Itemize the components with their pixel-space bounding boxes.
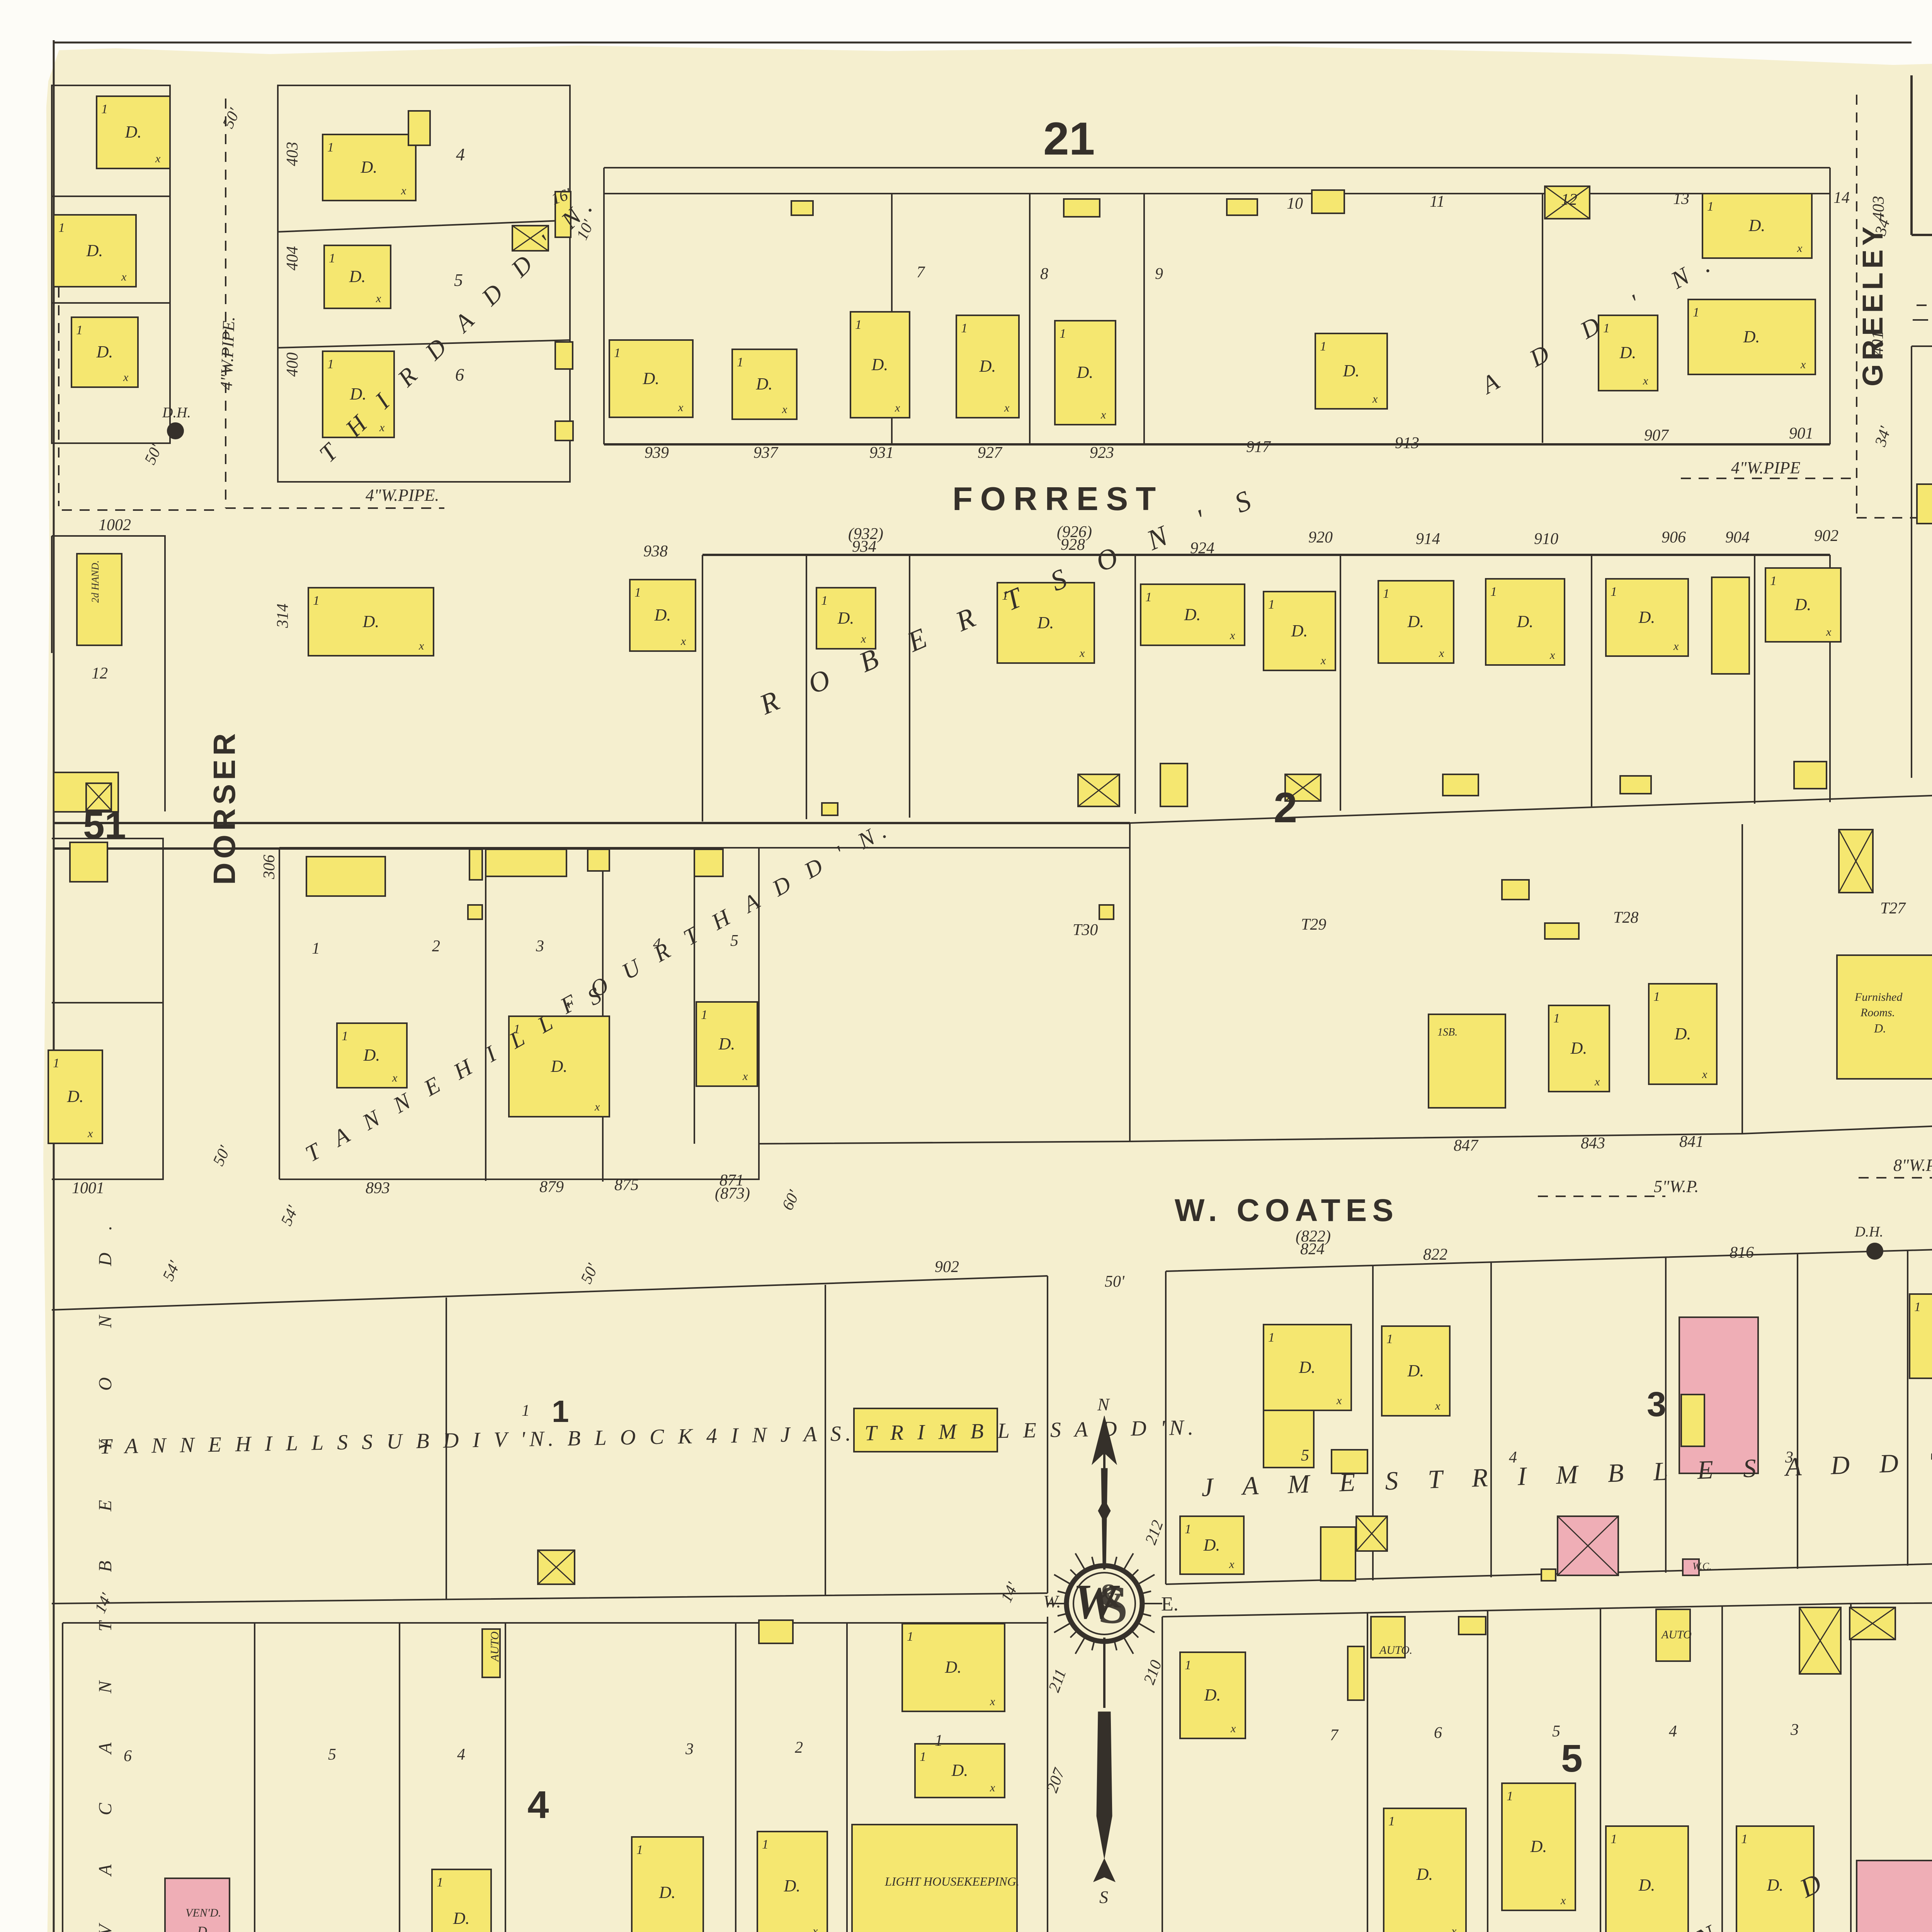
svg-text:x: x (1643, 374, 1648, 387)
svg-text:x: x (594, 1100, 600, 1113)
svg-text:D.: D. (1748, 216, 1765, 235)
svg-text:&: & (1096, 1577, 1123, 1615)
svg-text:5: 5 (730, 932, 738, 950)
svg-text:x: x (1673, 1928, 1679, 1932)
svg-text:x: x (1826, 626, 1832, 638)
svg-text:x: x (418, 639, 424, 652)
svg-text:1: 1 (76, 323, 83, 337)
svg-text:920: 920 (1308, 529, 1333, 546)
svg-text:D.: D. (1203, 1536, 1220, 1554)
svg-text:1: 1 (1611, 585, 1617, 599)
svg-text:D.: D. (361, 158, 378, 177)
svg-text:824: 824 (1300, 1240, 1325, 1258)
svg-text:1: 1 (636, 1843, 643, 1857)
svg-text:13: 13 (1673, 190, 1689, 208)
svg-text:D.: D. (1767, 1876, 1784, 1895)
svg-text:x: x (742, 1070, 748, 1083)
svg-text:x: x (1230, 1722, 1236, 1735)
svg-text:1: 1 (1741, 1832, 1748, 1846)
svg-text:x: x (1372, 393, 1378, 405)
svg-text:314: 314 (274, 604, 292, 628)
svg-text:x: x (1594, 1075, 1600, 1088)
svg-text:875: 875 (614, 1176, 639, 1194)
svg-text:T29: T29 (1301, 916, 1326, 934)
svg-text:1: 1 (961, 321, 968, 335)
svg-text:1: 1 (1002, 588, 1009, 603)
svg-text:x: x (1336, 1394, 1342, 1407)
svg-text:x: x (782, 403, 787, 416)
svg-text:3: 3 (685, 1740, 694, 1758)
svg-text:D.: D. (350, 384, 367, 403)
svg-text:404: 404 (284, 246, 301, 270)
svg-text:D.: D. (1638, 608, 1655, 627)
svg-text:x: x (401, 184, 406, 197)
svg-text:3: 3 (1790, 1721, 1799, 1739)
svg-text:D.: D. (979, 357, 996, 376)
svg-text:1: 1 (1320, 339, 1327, 354)
svg-text:14: 14 (1833, 189, 1850, 207)
svg-text:D.: D. (1407, 612, 1424, 631)
svg-text:T30: T30 (1073, 921, 1098, 939)
svg-text:841: 841 (1679, 1133, 1704, 1151)
svg-text:2: 2 (1274, 784, 1297, 832)
svg-text:D.: D. (125, 122, 142, 141)
svg-text:1: 1 (53, 1056, 60, 1070)
svg-text:1: 1 (1507, 1789, 1513, 1803)
svg-text:5: 5 (1552, 1723, 1560, 1740)
svg-text:12: 12 (1561, 191, 1577, 209)
svg-text:928: 928 (1061, 536, 1085, 554)
svg-text:1: 1 (514, 1022, 520, 1036)
svg-text:843: 843 (1581, 1134, 1605, 1152)
svg-text:6: 6 (1434, 1724, 1442, 1742)
svg-text:1001: 1001 (72, 1179, 104, 1197)
svg-text:x: x (895, 401, 900, 414)
svg-text:1: 1 (614, 346, 621, 360)
svg-text:1: 1 (437, 1875, 443, 1889)
svg-text:1: 1 (1386, 1332, 1393, 1346)
svg-text:1: 1 (737, 355, 743, 369)
svg-text:4"W.PIPE.: 4"W.PIPE. (366, 486, 439, 505)
svg-text:1: 1 (1914, 1300, 1921, 1314)
svg-text:937: 937 (753, 444, 779, 462)
svg-text:1: 1 (1388, 1814, 1395, 1828)
svg-text:x: x (1079, 647, 1085, 660)
svg-text:D.: D. (96, 342, 113, 361)
svg-text:7: 7 (1330, 1726, 1339, 1744)
svg-text:927: 927 (978, 444, 1003, 462)
svg-text:D.: D. (654, 605, 671, 624)
svg-text:306: 306 (260, 855, 278, 879)
svg-text:901: 901 (1789, 425, 1813, 442)
svg-text:x: x (155, 152, 161, 165)
svg-text:1: 1 (329, 251, 335, 265)
svg-text:x: x (123, 371, 129, 384)
svg-text:1: 1 (1707, 199, 1714, 214)
svg-text:N: N (1097, 1395, 1110, 1414)
svg-text:x: x (1439, 647, 1444, 660)
svg-text:D.: D. (659, 1883, 676, 1902)
svg-text:1: 1 (101, 102, 108, 116)
svg-text:934: 934 (852, 538, 876, 556)
svg-text:21: 21 (1043, 113, 1095, 165)
svg-text:D.: D. (1037, 613, 1054, 632)
svg-text:x: x (87, 1127, 93, 1140)
svg-text:D.: D. (1184, 605, 1201, 624)
svg-text:10: 10 (1287, 195, 1303, 213)
svg-text:FORREST: FORREST (952, 481, 1163, 517)
svg-text:x: x (1799, 1928, 1804, 1932)
svg-text:7: 7 (917, 264, 925, 281)
svg-text:E.: E. (1161, 1593, 1179, 1615)
svg-text:x: x (1560, 1894, 1566, 1907)
svg-text:x: x (680, 635, 686, 648)
svg-text:D.: D. (1077, 363, 1094, 382)
svg-text:LIGHT HOUSEKEEPING.: LIGHT HOUSEKEEPING. (884, 1874, 1019, 1888)
svg-text:DORSER: DORSER (207, 730, 241, 885)
svg-text:3: 3 (1785, 1449, 1793, 1466)
svg-text:x: x (1435, 1400, 1440, 1412)
svg-text:D.: D. (1619, 343, 1636, 362)
svg-text:AUTO: AUTO (488, 1631, 501, 1662)
svg-text:D.: D. (1416, 1865, 1433, 1884)
svg-text:D.: D. (1794, 595, 1811, 614)
svg-text:51: 51 (83, 804, 126, 847)
svg-text:x: x (678, 401, 684, 414)
svg-text:1: 1 (1145, 590, 1152, 604)
svg-text:x: x (376, 292, 381, 305)
svg-text:x: x (1100, 408, 1106, 421)
svg-text:1: 1 (855, 318, 862, 332)
svg-text:D.: D. (67, 1087, 84, 1106)
svg-text:D.: D. (837, 609, 854, 628)
svg-text:D.: D. (1743, 327, 1760, 346)
svg-text:D.: D. (945, 1658, 962, 1677)
svg-text:1SB.: 1SB. (1437, 1026, 1458, 1038)
svg-text:W. COATES: W. COATES (1175, 1193, 1399, 1228)
svg-text:8: 8 (1040, 265, 1048, 283)
svg-text:1: 1 (821, 594, 828, 608)
svg-text:5"W.P.: 5"W.P. (1654, 1177, 1699, 1196)
svg-text:T28: T28 (1613, 909, 1638, 927)
svg-text:822: 822 (1423, 1246, 1447, 1264)
svg-text:D.: D. (1517, 612, 1534, 631)
svg-text:931: 931 (869, 444, 894, 462)
svg-text:914: 914 (1416, 530, 1440, 548)
svg-text:1: 1 (313, 594, 320, 608)
svg-text:D.: D. (643, 369, 660, 388)
svg-text:1: 1 (920, 1750, 926, 1764)
svg-text:D.H.: D.H. (1854, 1224, 1883, 1240)
svg-text:4"W.PIPE.: 4"W.PIPE. (217, 316, 238, 390)
svg-text:847: 847 (1454, 1137, 1479, 1155)
svg-text:AUTO: AUTO (1661, 1628, 1692, 1641)
svg-text:917: 917 (1246, 438, 1271, 456)
svg-text:5: 5 (1561, 1737, 1583, 1780)
svg-text:x: x (1230, 629, 1235, 642)
svg-text:1: 1 (1693, 305, 1699, 320)
svg-text:12: 12 (92, 665, 108, 682)
svg-text:816: 816 (1730, 1244, 1754, 1262)
svg-text:5: 5 (328, 1746, 336, 1764)
svg-text:x: x (1673, 640, 1679, 653)
svg-text:4: 4 (1669, 1723, 1677, 1740)
svg-text:1: 1 (327, 357, 334, 371)
svg-text:4: 4 (653, 935, 661, 952)
svg-text:1: 1 (1611, 1832, 1617, 1846)
svg-text:4"W.PIPE: 4"W.PIPE (1731, 458, 1800, 477)
svg-text:4: 4 (1509, 1449, 1517, 1466)
svg-text:VEN'D.: VEN'D. (185, 1906, 221, 1919)
svg-text:910: 910 (1534, 530, 1558, 548)
svg-text:x: x (1797, 242, 1803, 255)
svg-text:1: 1 (1770, 574, 1777, 588)
svg-text:1: 1 (552, 1394, 569, 1429)
svg-text:D.: D. (197, 1923, 211, 1932)
svg-text:2d HAND.: 2d HAND. (90, 560, 101, 603)
svg-text:1: 1 (1185, 1522, 1191, 1536)
svg-text:Rooms.: Rooms. (1860, 1006, 1895, 1019)
svg-text:1: 1 (907, 1629, 913, 1644)
svg-text:1: 1 (634, 585, 641, 600)
svg-text:5: 5 (1301, 1447, 1309, 1464)
svg-text:1: 1 (342, 1029, 348, 1043)
svg-text:907: 907 (1644, 427, 1669, 444)
svg-text:1: 1 (1060, 327, 1066, 341)
svg-text:Furnished: Furnished (1854, 991, 1903, 1003)
svg-text:D.: D. (1874, 1021, 1886, 1035)
svg-text:1: 1 (312, 940, 320, 957)
svg-text:403: 403 (284, 142, 301, 166)
svg-text:3: 3 (536, 937, 544, 955)
svg-text:x: x (990, 1695, 995, 1708)
svg-text:x: x (121, 270, 127, 283)
svg-text:1: 1 (1383, 587, 1389, 601)
svg-text:4: 4 (457, 1746, 465, 1764)
svg-text:D.: D. (1343, 361, 1360, 380)
svg-text:1: 1 (935, 1732, 943, 1750)
svg-text:x: x (1702, 1068, 1708, 1081)
svg-text:5: 5 (454, 270, 463, 290)
svg-text:913: 913 (1395, 434, 1419, 452)
svg-text:x: x (1800, 358, 1806, 371)
svg-text:902: 902 (1814, 527, 1838, 545)
svg-text:938: 938 (643, 543, 668, 560)
svg-text:x: x (861, 633, 866, 645)
svg-text:D.: D. (1204, 1685, 1221, 1704)
svg-text:1: 1 (1490, 585, 1497, 599)
svg-text:1: 1 (1268, 597, 1275, 612)
svg-text:6: 6 (455, 365, 464, 384)
svg-text:1: 1 (762, 1837, 769, 1852)
svg-text:T27: T27 (1880, 900, 1906, 917)
svg-text:4: 4 (527, 1783, 549, 1827)
svg-text:x: x (379, 421, 385, 434)
svg-text:V A C A N T B E Y O N D.: V A C A N T B E Y O N D. (95, 1203, 116, 1932)
svg-text:x: x (392, 1071, 398, 1084)
svg-text:D.: D. (362, 612, 379, 631)
svg-text:D.: D. (86, 241, 103, 260)
svg-text:2: 2 (795, 1739, 803, 1757)
svg-text:D.: D. (951, 1761, 968, 1780)
svg-text:x: x (1549, 649, 1555, 662)
svg-text:50': 50' (1105, 1273, 1125, 1291)
svg-text:D.: D. (1407, 1361, 1424, 1380)
svg-text:2: 2 (432, 937, 440, 955)
svg-text:AUTO.: AUTO. (1379, 1644, 1412, 1656)
svg-text:11: 11 (1430, 193, 1445, 211)
svg-text:D.: D. (871, 355, 888, 374)
svg-text:1: 1 (1268, 1330, 1275, 1345)
svg-text:939: 939 (645, 444, 669, 462)
svg-text:x: x (990, 1781, 995, 1794)
svg-text:3: 3 (1647, 1385, 1666, 1424)
svg-text:400: 400 (284, 352, 301, 377)
svg-text:902: 902 (935, 1258, 959, 1276)
svg-text:GREELEY: GREELEY (1857, 223, 1889, 386)
svg-text:D.: D. (349, 267, 366, 286)
svg-text:1: 1 (1653, 990, 1660, 1004)
svg-text:893: 893 (366, 1179, 390, 1197)
svg-text:(873): (873) (715, 1185, 750, 1202)
svg-text:879: 879 (539, 1178, 564, 1196)
svg-text:8"W.PIPE.: 8"W.PIPE. (1893, 1156, 1932, 1175)
svg-text:D.: D. (1291, 621, 1308, 640)
svg-text:1002: 1002 (99, 516, 131, 534)
svg-text:D.: D. (784, 1876, 801, 1895)
svg-text:923: 923 (1090, 444, 1114, 462)
svg-text:9: 9 (1155, 265, 1163, 283)
svg-text:4: 4 (456, 145, 465, 164)
svg-text:904: 904 (1725, 529, 1750, 546)
svg-text:D.: D. (718, 1034, 735, 1053)
svg-text:906: 906 (1662, 529, 1686, 546)
svg-text:1: 1 (522, 1402, 530, 1420)
svg-text:x: x (812, 1925, 818, 1932)
svg-text:x: x (1451, 1925, 1457, 1932)
svg-text:1: 1 (1553, 1011, 1560, 1026)
svg-text:W.: W. (1043, 1592, 1061, 1611)
svg-text:D.: D. (1570, 1039, 1587, 1058)
svg-text:D.: D. (551, 1057, 568, 1076)
svg-text:1: 1 (1185, 1658, 1191, 1672)
svg-text:401: 401 (1869, 331, 1887, 355)
svg-text:6: 6 (124, 1747, 132, 1765)
svg-text:S: S (1099, 1887, 1108, 1907)
svg-text:D.: D. (756, 374, 773, 393)
svg-text:1: 1 (1603, 321, 1610, 335)
svg-text:D.: D. (1674, 1024, 1691, 1043)
svg-text:x: x (1229, 1558, 1235, 1571)
svg-text:W.C.: W.C. (1692, 1561, 1712, 1572)
svg-text:D.: D. (1530, 1837, 1547, 1856)
svg-text:D.: D. (453, 1909, 470, 1928)
svg-text:924: 924 (1190, 539, 1214, 557)
svg-text:D.H.: D.H. (162, 405, 191, 421)
svg-text:D.: D. (363, 1046, 380, 1065)
svg-text:x: x (1320, 654, 1326, 667)
svg-text:D.: D. (1638, 1876, 1655, 1895)
svg-text:1: 1 (327, 140, 334, 155)
svg-text:x: x (1004, 401, 1010, 414)
svg-text:1: 1 (701, 1008, 707, 1022)
svg-text:1: 1 (58, 221, 65, 235)
svg-text:D.: D. (1299, 1358, 1316, 1377)
